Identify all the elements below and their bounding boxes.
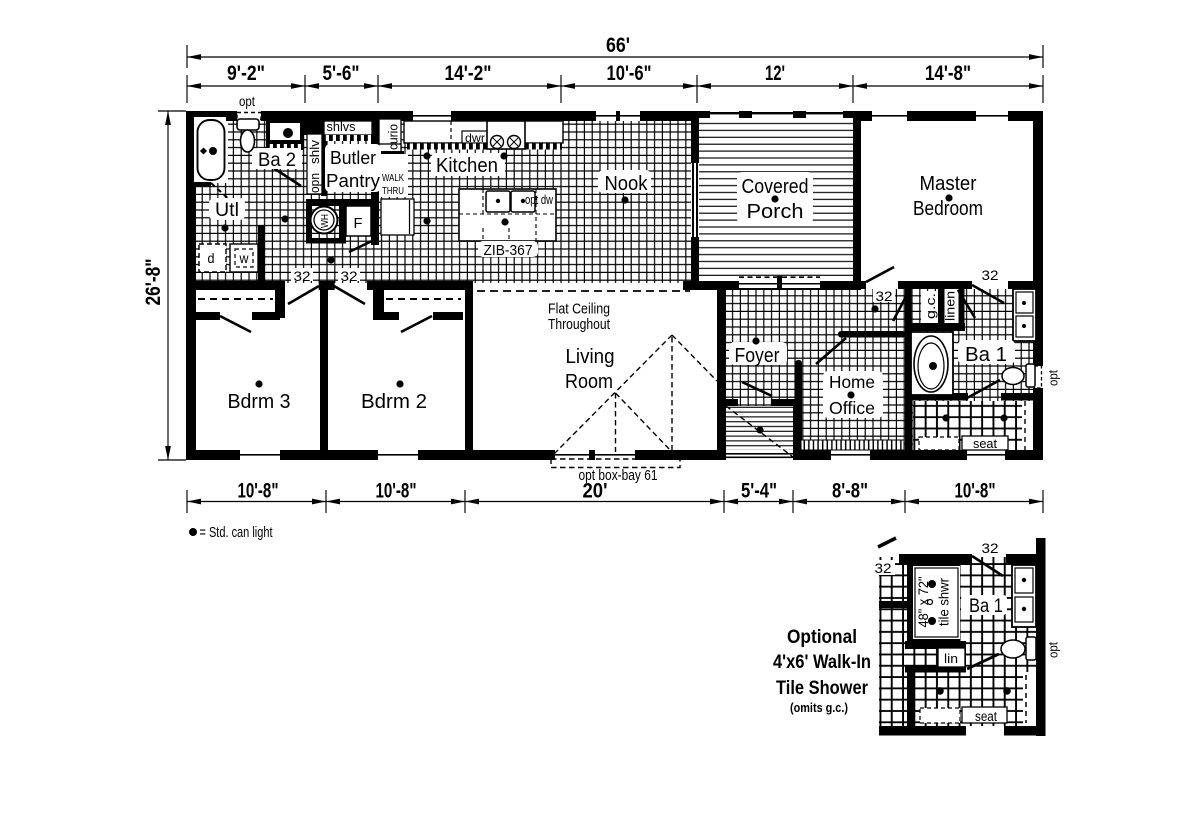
svg-text:Porch: Porch	[747, 200, 804, 223]
svg-text:g.c.: g.c.	[923, 293, 938, 319]
svg-text:Ba 2: Ba 2	[258, 149, 296, 171]
svg-text:opt: opt	[1046, 370, 1061, 386]
svg-text:Flat Ceiling: Flat Ceiling	[548, 302, 610, 318]
svg-text:26'-8": 26'-8"	[142, 259, 165, 306]
svg-text:Ba 1: Ba 1	[965, 344, 1007, 366]
svg-text:32: 32	[294, 268, 311, 284]
svg-text:Nook: Nook	[605, 172, 649, 195]
svg-text:32: 32	[341, 268, 358, 284]
svg-text:dwr: dwr	[465, 131, 485, 145]
svg-text:ZIB-367: ZIB-367	[484, 242, 533, 259]
svg-text:8'-8": 8'-8"	[832, 480, 868, 503]
svg-text:10'-8": 10'-8"	[955, 480, 996, 503]
svg-text:shlvs: shlvs	[327, 119, 356, 134]
svg-text:12': 12'	[765, 62, 785, 85]
svg-text:10'-8": 10'-8"	[238, 480, 279, 503]
svg-text:curio: curio	[386, 124, 401, 150]
svg-text:Pantry: Pantry	[326, 170, 381, 191]
svg-text:Bdrm 2: Bdrm 2	[361, 390, 427, 413]
svg-text:32: 32	[982, 267, 999, 283]
svg-text:seat: seat	[973, 436, 997, 451]
svg-text:Tile Shower: Tile Shower	[776, 678, 869, 699]
svg-text:Utl: Utl	[215, 199, 239, 221]
svg-text:5'-6": 5'-6"	[323, 62, 360, 85]
svg-text:Foyer: Foyer	[735, 345, 780, 367]
svg-text:(omits g.c.): (omits g.c.)	[790, 700, 848, 715]
svg-text:= Std. can light: = Std. can light	[200, 524, 274, 541]
svg-text:opn: opn	[307, 173, 322, 193]
svg-text:Covered: Covered	[742, 175, 809, 198]
svg-text:Throughout: Throughout	[548, 317, 610, 333]
svg-text:Living: Living	[566, 345, 615, 368]
svg-text:THRU: THRU	[382, 185, 404, 197]
svg-text:Kitchen: Kitchen	[436, 154, 498, 177]
svg-text:4'x6' Walk-In: 4'x6' Walk-In	[773, 652, 871, 673]
svg-text:w: w	[239, 250, 250, 266]
svg-text:Bdrm 3: Bdrm 3	[228, 390, 291, 413]
svg-text:linen: linen	[943, 291, 958, 321]
svg-text:shlv: shlv	[307, 139, 322, 164]
svg-text:Bedroom: Bedroom	[913, 197, 983, 220]
svg-text:14'-2": 14'-2"	[445, 62, 492, 85]
svg-text:F: F	[354, 215, 363, 232]
svg-text:d: d	[208, 250, 215, 266]
svg-text:Office: Office	[829, 398, 875, 418]
svg-text:32: 32	[876, 288, 893, 304]
svg-text:tile shwr: tile shwr	[936, 578, 952, 626]
svg-text:WH: WH	[319, 214, 331, 228]
svg-text:opt dw: opt dw	[525, 193, 554, 207]
svg-text:32: 32	[982, 540, 999, 556]
svg-text:Butler: Butler	[330, 147, 376, 168]
svg-text:opt: opt	[239, 93, 255, 109]
svg-text:5'-4": 5'-4"	[741, 480, 777, 503]
svg-text:Room: Room	[565, 370, 613, 393]
svg-text:48" x 72": 48" x 72"	[915, 576, 931, 627]
svg-text:14'-8": 14'-8"	[925, 62, 971, 85]
svg-text:32: 32	[875, 560, 892, 576]
svg-text:9'-2": 9'-2"	[227, 62, 265, 85]
svg-text:opt: opt	[1046, 642, 1061, 658]
svg-text:Optional: Optional	[787, 627, 857, 648]
svg-text:10'-8": 10'-8"	[376, 480, 417, 503]
svg-text:Master: Master	[920, 172, 977, 195]
svg-text:seat: seat	[975, 709, 997, 724]
svg-text:Home: Home	[829, 372, 875, 392]
svg-text:WALK: WALK	[382, 172, 404, 184]
svg-text:66': 66'	[606, 34, 630, 57]
svg-text:lin: lin	[944, 652, 958, 666]
svg-text:10'-6": 10'-6"	[607, 62, 652, 85]
svg-text:Ba 1: Ba 1	[969, 596, 1003, 617]
svg-text:20': 20'	[583, 480, 608, 503]
